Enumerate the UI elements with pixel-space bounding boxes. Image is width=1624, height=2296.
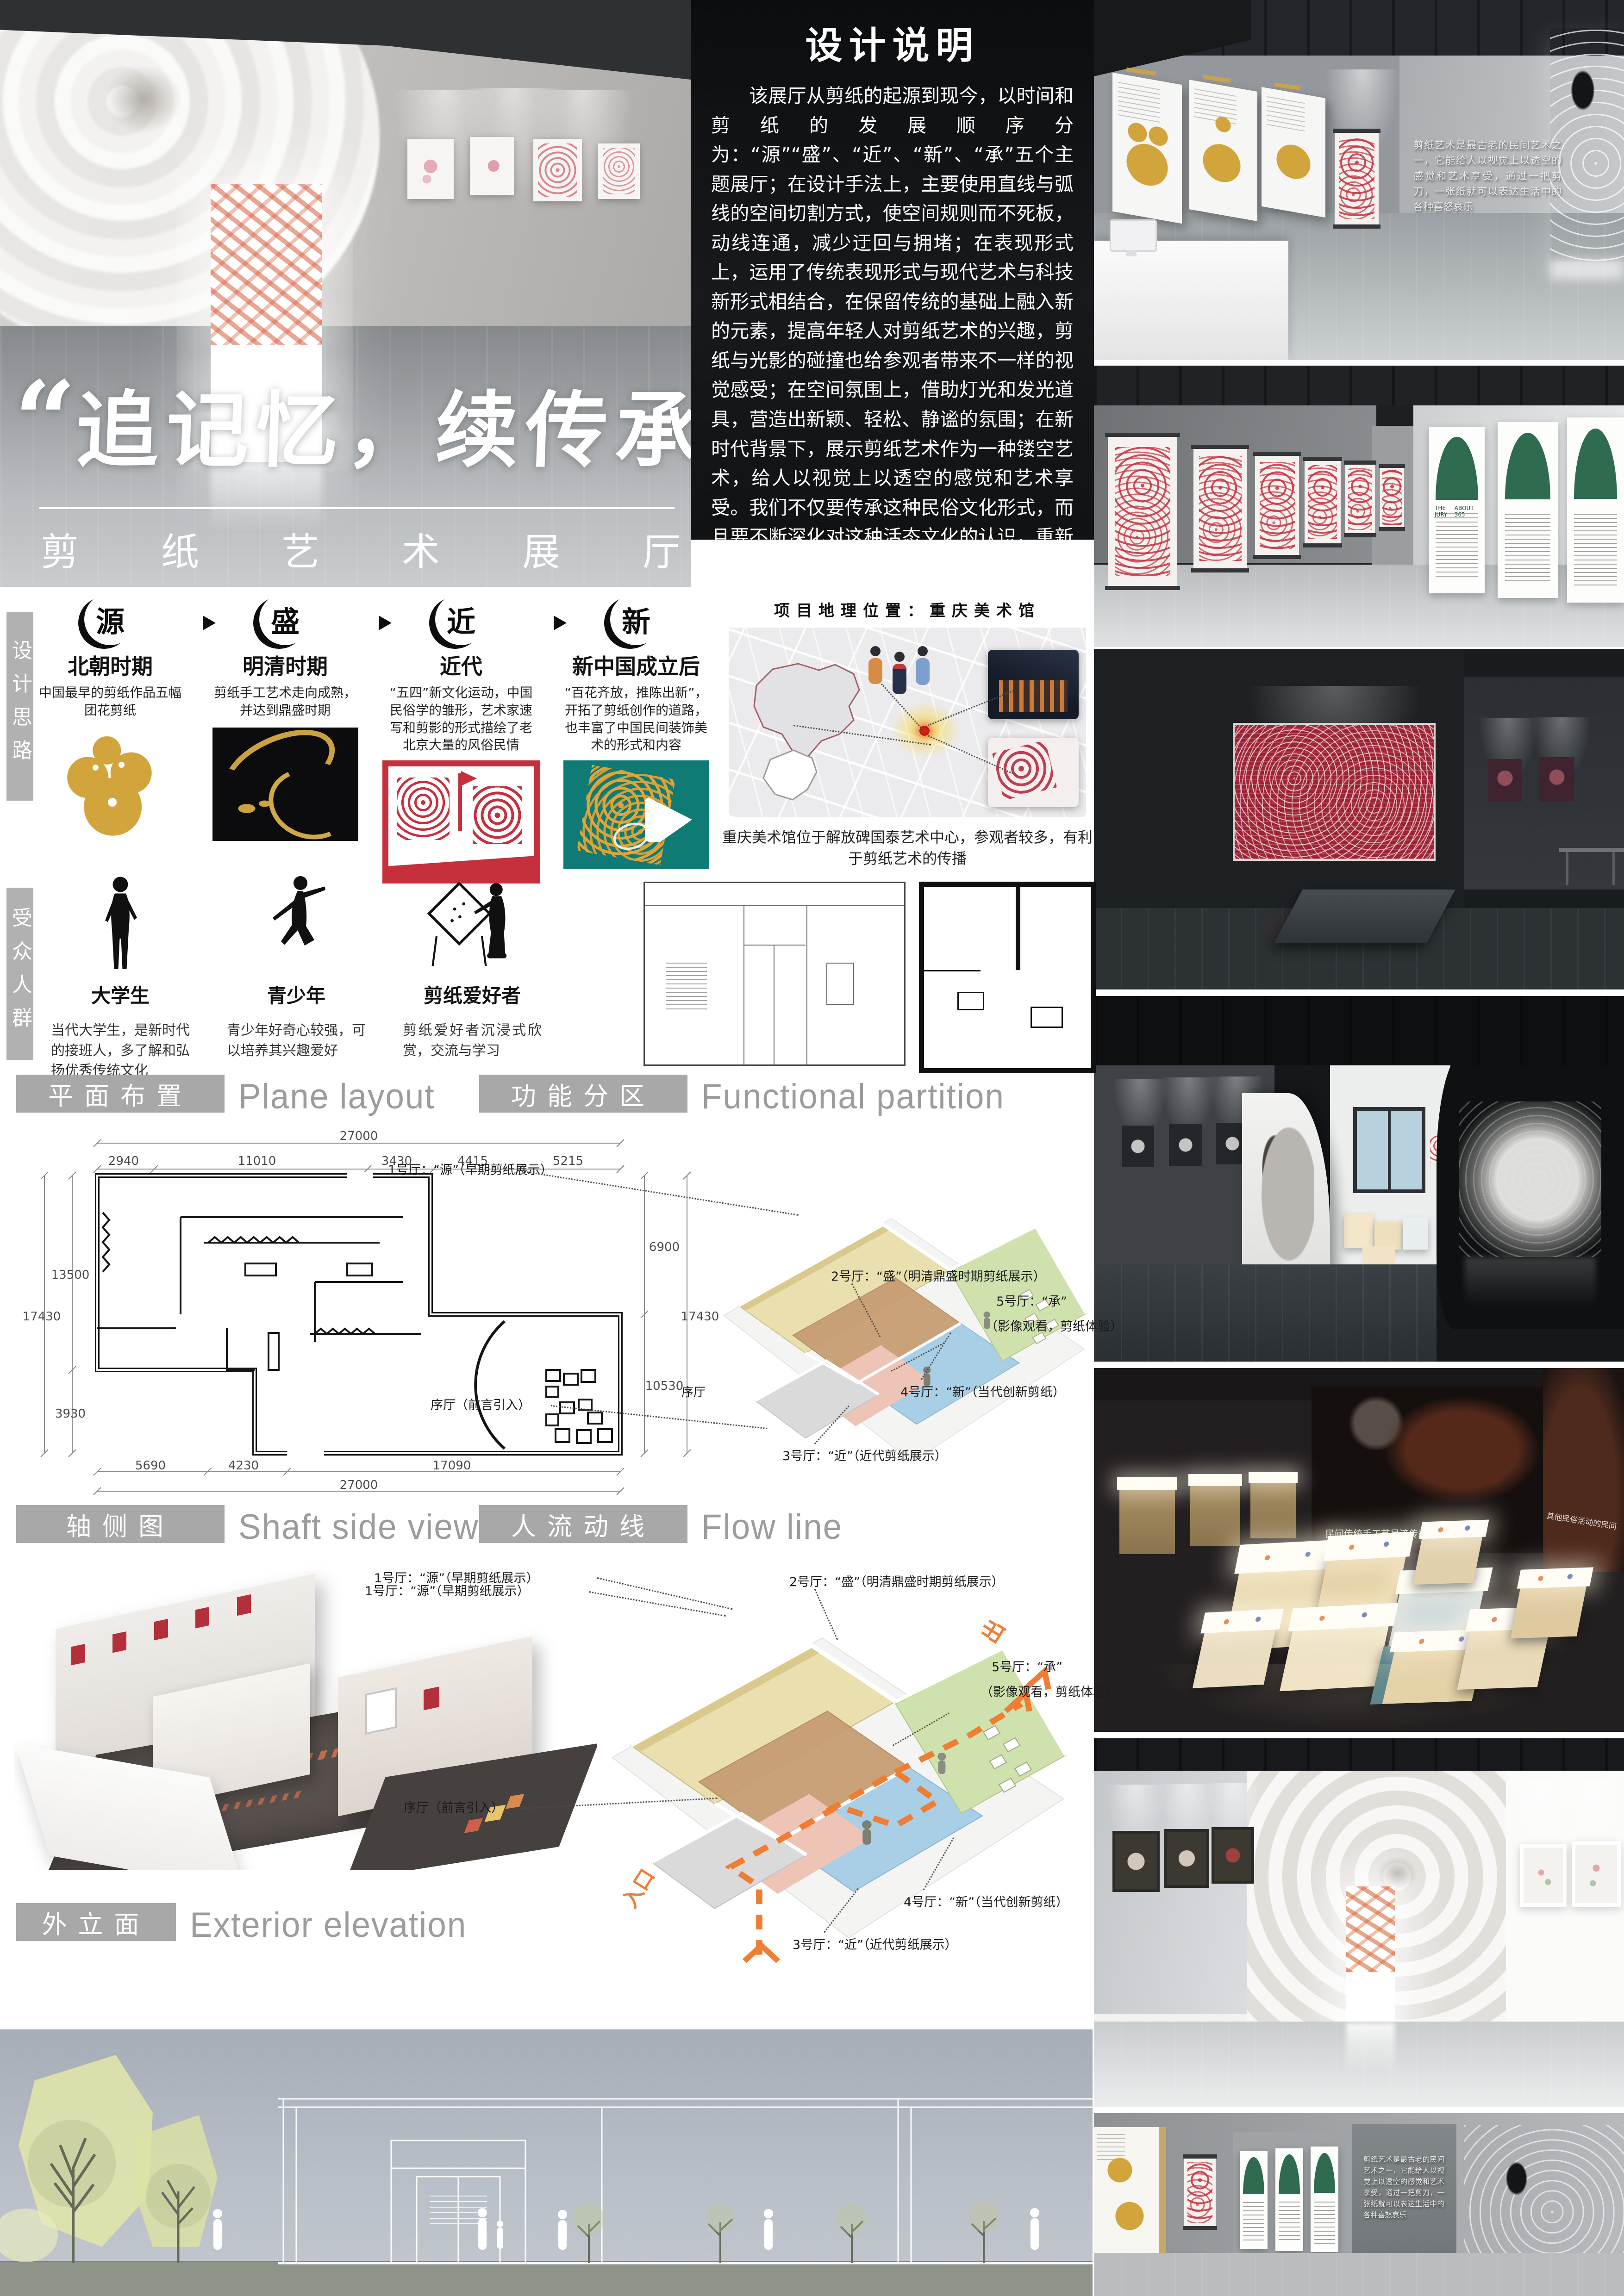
papercut-pattern (211, 184, 322, 345)
visitor-figure (868, 646, 883, 686)
lit-papercut-column (1346, 1886, 1395, 2039)
white-framed-artwork (1520, 1844, 1567, 1907)
audience-desc: 当代大学生，是新时代的接班人，多了解和弘扬优秀传统文化 (51, 1020, 190, 1081)
timeline-desc: “五四”新文化运动，中国民俗学的雏形，艺术家速写和剪影的形式描绘了老北京大量的风… (385, 684, 537, 754)
green-arch-poster (1240, 2151, 1268, 2249)
timeline-badge: 近 (435, 593, 487, 645)
city-night-photo (988, 650, 1079, 719)
drawing-text-block (666, 963, 707, 1010)
dim-left-upper: 13500 (51, 1268, 90, 1282)
flow-label-hall1: 1号厅：“源”（早期剪纸展示） (365, 1581, 530, 1599)
dim-seg: 2940 (108, 1154, 139, 1168)
render-lightbox-hall: 民间传统手工艺是流传最久的 其他民俗活动的民间 (1094, 1368, 1624, 1732)
ceiling (1094, 1738, 1624, 1771)
section-header-flow-en: Flow line (701, 1507, 843, 1547)
window-mullion (1388, 1111, 1391, 1189)
wall-artwork (470, 137, 514, 195)
gallery-wall-text: 剪纸艺术是最古老的民间艺术之一，它能给人以视觉上以透空的感觉和艺术享受，通过一把… (1363, 2154, 1444, 2221)
dim-seg: 5215 (553, 1154, 583, 1168)
floor-reflection (1094, 1264, 1437, 1362)
lobby-short-label: 序厅 (681, 1383, 706, 1400)
glowing-lightbox (1413, 1532, 1484, 1585)
white-framed-artwork (1572, 1841, 1621, 1907)
glowing-lightbox (1511, 1581, 1588, 1639)
partition-label-hall4: 4号厅：“新”（当代创新剪纸） (900, 1382, 1065, 1400)
timeline-title: 近代 (380, 650, 543, 680)
imac-screen (1110, 219, 1157, 252)
section-header-plane-en: Plane layout (238, 1076, 435, 1117)
rose-center (1376, 1856, 1418, 1891)
design-description-panel: 设计说明 该展厅从剪纸的起源到现今，以时间和剪纸的发展顺序分为：“源”“盛”、“… (691, 0, 1094, 540)
wall-artwork (407, 139, 454, 199)
red-artwork (154, 1619, 168, 1640)
flow-label-lobby: 序厅（前言引入） (404, 1798, 504, 1816)
location-caption: 重庆美术馆位于解放碑国泰艺术中心，参观者较多，有利于剪纸艺术的传播 (722, 826, 1093, 868)
spotlight (1513, 1782, 1568, 1849)
visitor-figure (892, 652, 907, 691)
display-box (506, 1794, 525, 1809)
timeline-item-yuan: 源 北朝时期 中国最早的剪纸作品五幅团花剪纸 (29, 593, 192, 841)
red-artwork (424, 1686, 439, 1710)
dim-bottom-seg: 4230 (228, 1459, 259, 1473)
green-arch-poster (1498, 422, 1558, 598)
visitor-figure (915, 646, 931, 687)
column-reflection (1346, 2023, 1395, 2074)
table-leg (1566, 852, 1568, 885)
section-header-exterior: 外立面 (16, 1903, 176, 1941)
papercut-hobbyist-icon (424, 875, 521, 972)
pedestal (1190, 1481, 1240, 1546)
papercut-pattern (1346, 1886, 1395, 1972)
green-arch-poster: THE JURY ABOUT 365 (1429, 427, 1485, 593)
red-scroll-artwork (1345, 462, 1375, 536)
modern-papercut-image (563, 760, 709, 869)
ceiling (1094, 366, 1624, 405)
flow-label-hall2: 2号厅：“盛”（明清鼎盛时期剪纸展示） (789, 1572, 1004, 1590)
framed-artwork (1164, 1829, 1209, 1888)
flow-line-diagram (602, 1597, 1074, 1967)
main-title: “ 追记忆，续传承 ” (14, 388, 681, 474)
vase-papercut-frame (1169, 1124, 1202, 1166)
elevation-drawing (0, 2029, 1093, 2296)
dim-seg: 11010 (238, 1154, 276, 1168)
dim-left-lower: 3930 (55, 1407, 86, 1421)
timeline-title: 新中国成立后 (555, 650, 718, 680)
red-scroll-artwork (1108, 435, 1177, 588)
render-curved-media-hall (1094, 996, 1624, 1362)
title-calligraphy: 追记忆，续传承 (75, 388, 691, 474)
audience-desc: 青少年好奇心较强，可以培养其兴趣爱好 (227, 1020, 366, 1061)
exhibition-design-poster: “ 追记忆，续传承 ” 剪纸艺术展厅 设计说明 该展厅从剪纸的起源到现今，以时间… (0, 0, 1624, 2296)
side-projection: 其他民俗活动的民间 (1543, 1368, 1624, 1572)
section-header-exterior-en: Exterior elevation (190, 1905, 467, 1945)
partition-label-hall5-sub: （影像观看，剪纸体验） (985, 1316, 1123, 1334)
glowing-top (1188, 1474, 1243, 1486)
small-dark-artwork (1488, 759, 1522, 802)
gold-papercut-panel (1262, 87, 1325, 218)
dim-right-lower: 10530 (645, 1379, 684, 1393)
timeline-desc: “百花齐放，推陈出新”，开拓了剪纸创作的道路，也丰富了中国民间装饰美术的形式和内… (560, 684, 712, 754)
subtitle: 剪纸艺术展厅 (41, 521, 680, 576)
floor-glow (1149, 1664, 1566, 1732)
section-header-shaft-en: Shaft side view (238, 1507, 479, 1547)
red-papercut-scene-image (382, 760, 540, 884)
timeline-item-jin: 近 近代 “五四”新文化运动，中国民俗学的雏形，艺术家速写和剪影的形式描绘了老北… (380, 593, 543, 884)
dim-left-outer: 17430 (23, 1310, 61, 1324)
viewing-bench (1274, 890, 1455, 943)
red-artwork (71, 1644, 85, 1665)
papercut-artist-artwork (1464, 2125, 1624, 2265)
spotlight (1566, 1781, 1622, 1848)
section-header-plane: 平面布置 (16, 1075, 225, 1113)
hero-gallery-photo: “ 追记忆，续传承 ” 剪纸艺术展厅 (0, 0, 691, 587)
papercut-artist-artwork (1550, 28, 1624, 261)
flow-label-hall5: 5号厅：“承” (992, 1657, 1062, 1675)
gold-papercut-panel (1112, 73, 1182, 224)
portrait-collage (1258, 1124, 1314, 1269)
floor (1094, 2253, 1624, 2296)
timeline-badge: 盛 (259, 593, 311, 645)
render-exit-corridor: 剪纸艺术是最古老的民间艺术之一，它能给人以视觉上以透空的感觉和艺术享受，通过一把… (1094, 2113, 1624, 2296)
render-rose-hall (1094, 1738, 1624, 2107)
red-scroll-artwork (1255, 454, 1299, 557)
timeline-title: 北朝时期 (29, 650, 192, 680)
timeline-badge: 源 (84, 593, 136, 645)
flow-label-hall3: 3号厅：“近”（近代剪纸展示） (793, 1935, 957, 1953)
dim-bottom-seg: 17090 (433, 1459, 471, 1473)
dim-total-top: 27000 (340, 1129, 378, 1143)
gallery-wall-text: 剪纸艺术是最古老的民间艺术之一，它能给人以视觉上以透空的感觉和艺术享受，通过一把… (1413, 138, 1562, 230)
side-projection-caption: 其他民俗活动的民间 (1546, 1509, 1621, 1532)
audience-desc: 剪纸爱好者沉浸式欣赏，交流与学习 (403, 1020, 542, 1061)
render-scroll-corridor: THE JURY ABOUT 365 (1094, 366, 1624, 647)
dim-right-upper: 6900 (649, 1240, 680, 1254)
partition-label-hall1: 1号厅：“源”（早期剪纸展示） (388, 1160, 553, 1178)
partition-label-lobby: 序厅（前言引入） (431, 1395, 531, 1413)
white-rose-mural (0, 0, 380, 356)
section-header-shaft: 轴侧图 (16, 1505, 225, 1543)
timeline-item-sheng: 盛 明清时期 剪纸手工艺术走向成熟，并达到鼎盛时期 (204, 593, 367, 841)
dim-right-outer: 17430 (681, 1310, 719, 1324)
papercut-photo (988, 738, 1079, 807)
partition-label-hall3: 3号厅：“近”（近代剪纸展示） (782, 1446, 947, 1464)
timeline-badge: 新 (610, 593, 662, 645)
dark-curved-screen (1437, 1052, 1624, 1329)
shaft-side-render (14, 1564, 597, 1870)
green-arch-poster (1567, 417, 1624, 603)
audience-title: 大学生 (42, 980, 199, 1008)
audience-title: 青少年 (218, 980, 375, 1008)
red-artwork (237, 1594, 251, 1616)
open-quote-mark: “ (14, 388, 76, 455)
design-description-body: 该展厅从剪纸的起源到现今，以时间和剪纸的发展顺序分为：“源”“盛”、“近”、“新… (711, 81, 1074, 611)
timeline-item-xin: 新 新中国成立后 “百花齐放，推陈出新”，开拓了剪纸创作的道路，也丰富了中国民间… (555, 593, 718, 869)
audience-item-teen: 青少年 青少年好奇心较强，可以培养其兴趣爱好 (218, 875, 375, 1061)
red-artwork (195, 1607, 209, 1628)
glowing-top (1249, 1472, 1298, 1483)
red-scroll-artwork (1193, 447, 1247, 571)
audience-title: 剪纸爱好者 (394, 980, 551, 1008)
audience-item-hobbyist: 剪纸爱好者 剪纸爱好者沉浸式欣赏，交流与学习 (394, 875, 551, 1061)
glowing-top (1117, 1477, 1177, 1490)
timeline-title: 明清时期 (204, 650, 367, 680)
kneeling-figure (1506, 2162, 1527, 2195)
poster-caption: THE JURY ABOUT 365 (1435, 505, 1479, 518)
audience-item-student: 大学生 当代大学生，是新时代的接班人，多了解和弘扬优秀传统文化 (42, 875, 199, 1081)
framed-artwork (1112, 1831, 1160, 1892)
section-header-partition: 功能分区 (479, 1075, 687, 1113)
ceiling (1094, 996, 1624, 1065)
project-location-block: 项目地理位置：重庆美术馆 重庆美术馆位于解放碑国泰艺术中心 (722, 598, 1093, 855)
audience-label: 受众人群 (6, 888, 33, 1060)
table-leg (1612, 852, 1615, 885)
cream-box (1403, 1217, 1428, 1250)
red-scroll-artwork (1184, 2156, 1216, 2229)
section-header-partition-en: Functional partition (701, 1076, 1005, 1117)
imac-stand (1126, 250, 1137, 256)
kneeling-figure (1571, 70, 1595, 111)
cream-box (1344, 1213, 1373, 1248)
gold-butterfly-papercut-image (50, 722, 170, 846)
red-scroll-artwork (1380, 465, 1404, 530)
vase-papercut-frame (1122, 1126, 1154, 1167)
sculpture-reflection (1465, 1257, 1596, 1307)
dim-total-bottom: 27000 (340, 1478, 378, 1492)
red-scroll-artwork (1305, 458, 1341, 546)
window (1353, 1107, 1425, 1193)
location-title: 项目地理位置：重庆美术馆 (722, 598, 1093, 621)
gold-papercut-panel (1094, 2127, 1166, 2271)
red-papercut-mural (1233, 723, 1436, 861)
gold-papercut-panel (1189, 80, 1257, 221)
teen-icon (262, 875, 331, 972)
cream-box (1362, 1246, 1395, 1264)
timeline-desc: 剪纸手工艺术走向成熟，并达到鼎盛时期 (209, 684, 362, 719)
console-table (1559, 848, 1624, 852)
location-map (729, 628, 1086, 817)
entrance-elevation-drawing (643, 882, 906, 1066)
pedestal (1119, 1485, 1175, 1554)
render-red-mural-hall (1094, 649, 1624, 989)
student-icon (86, 875, 155, 972)
partition-label-hall2: 2号厅：“盛”（明清鼎盛时期剪纸展示） (831, 1266, 1046, 1284)
dim-bottom-seg: 5690 (135, 1459, 166, 1473)
timeline-desc: 中国最早的剪纸作品五幅团花剪纸 (34, 684, 187, 719)
wall-artwork (598, 143, 640, 199)
paper-sculpture (1459, 1101, 1602, 1257)
phoenix-papercut-image (212, 728, 358, 841)
pedestal (1250, 1478, 1296, 1538)
cream-box (1374, 1222, 1401, 1250)
design-description-title: 设计说明 (711, 16, 1074, 69)
small-dark-artwork (1539, 757, 1574, 802)
red-scroll-artwork (1335, 131, 1379, 227)
wall-artwork (533, 139, 582, 201)
artwork-underlight (1550, 259, 1624, 280)
green-arch-poster (1311, 2147, 1338, 2252)
partition-label-hall5: 5号厅：“承” (996, 1291, 1067, 1309)
reception-counter (1094, 241, 1288, 360)
flow-label-hall4: 4号厅：“新”（当代创新剪纸） (904, 1892, 1068, 1910)
exterior-elevation-image (0, 2029, 1093, 2296)
section-header-flow: 人流动线 (479, 1505, 687, 1543)
functional-partition-diagram (715, 1185, 1093, 1486)
green-arch-poster (1275, 2148, 1303, 2251)
plan-sketch-drawing (919, 882, 1096, 1073)
rose-center-shadow (104, 65, 183, 134)
window (365, 1687, 397, 1735)
display-box (464, 1818, 483, 1833)
red-artwork (112, 1631, 126, 1653)
flow-label-hall5-sub: （影像观看，剪纸体验） (981, 1682, 1118, 1700)
render-entry-gallery: 剪纸艺术是最古老的民间艺术之一，它能给人以视觉上以透空的感觉和艺术享受，通过一把… (1094, 0, 1624, 360)
title-divider (39, 507, 675, 509)
framed-artwork (1212, 1827, 1254, 1884)
